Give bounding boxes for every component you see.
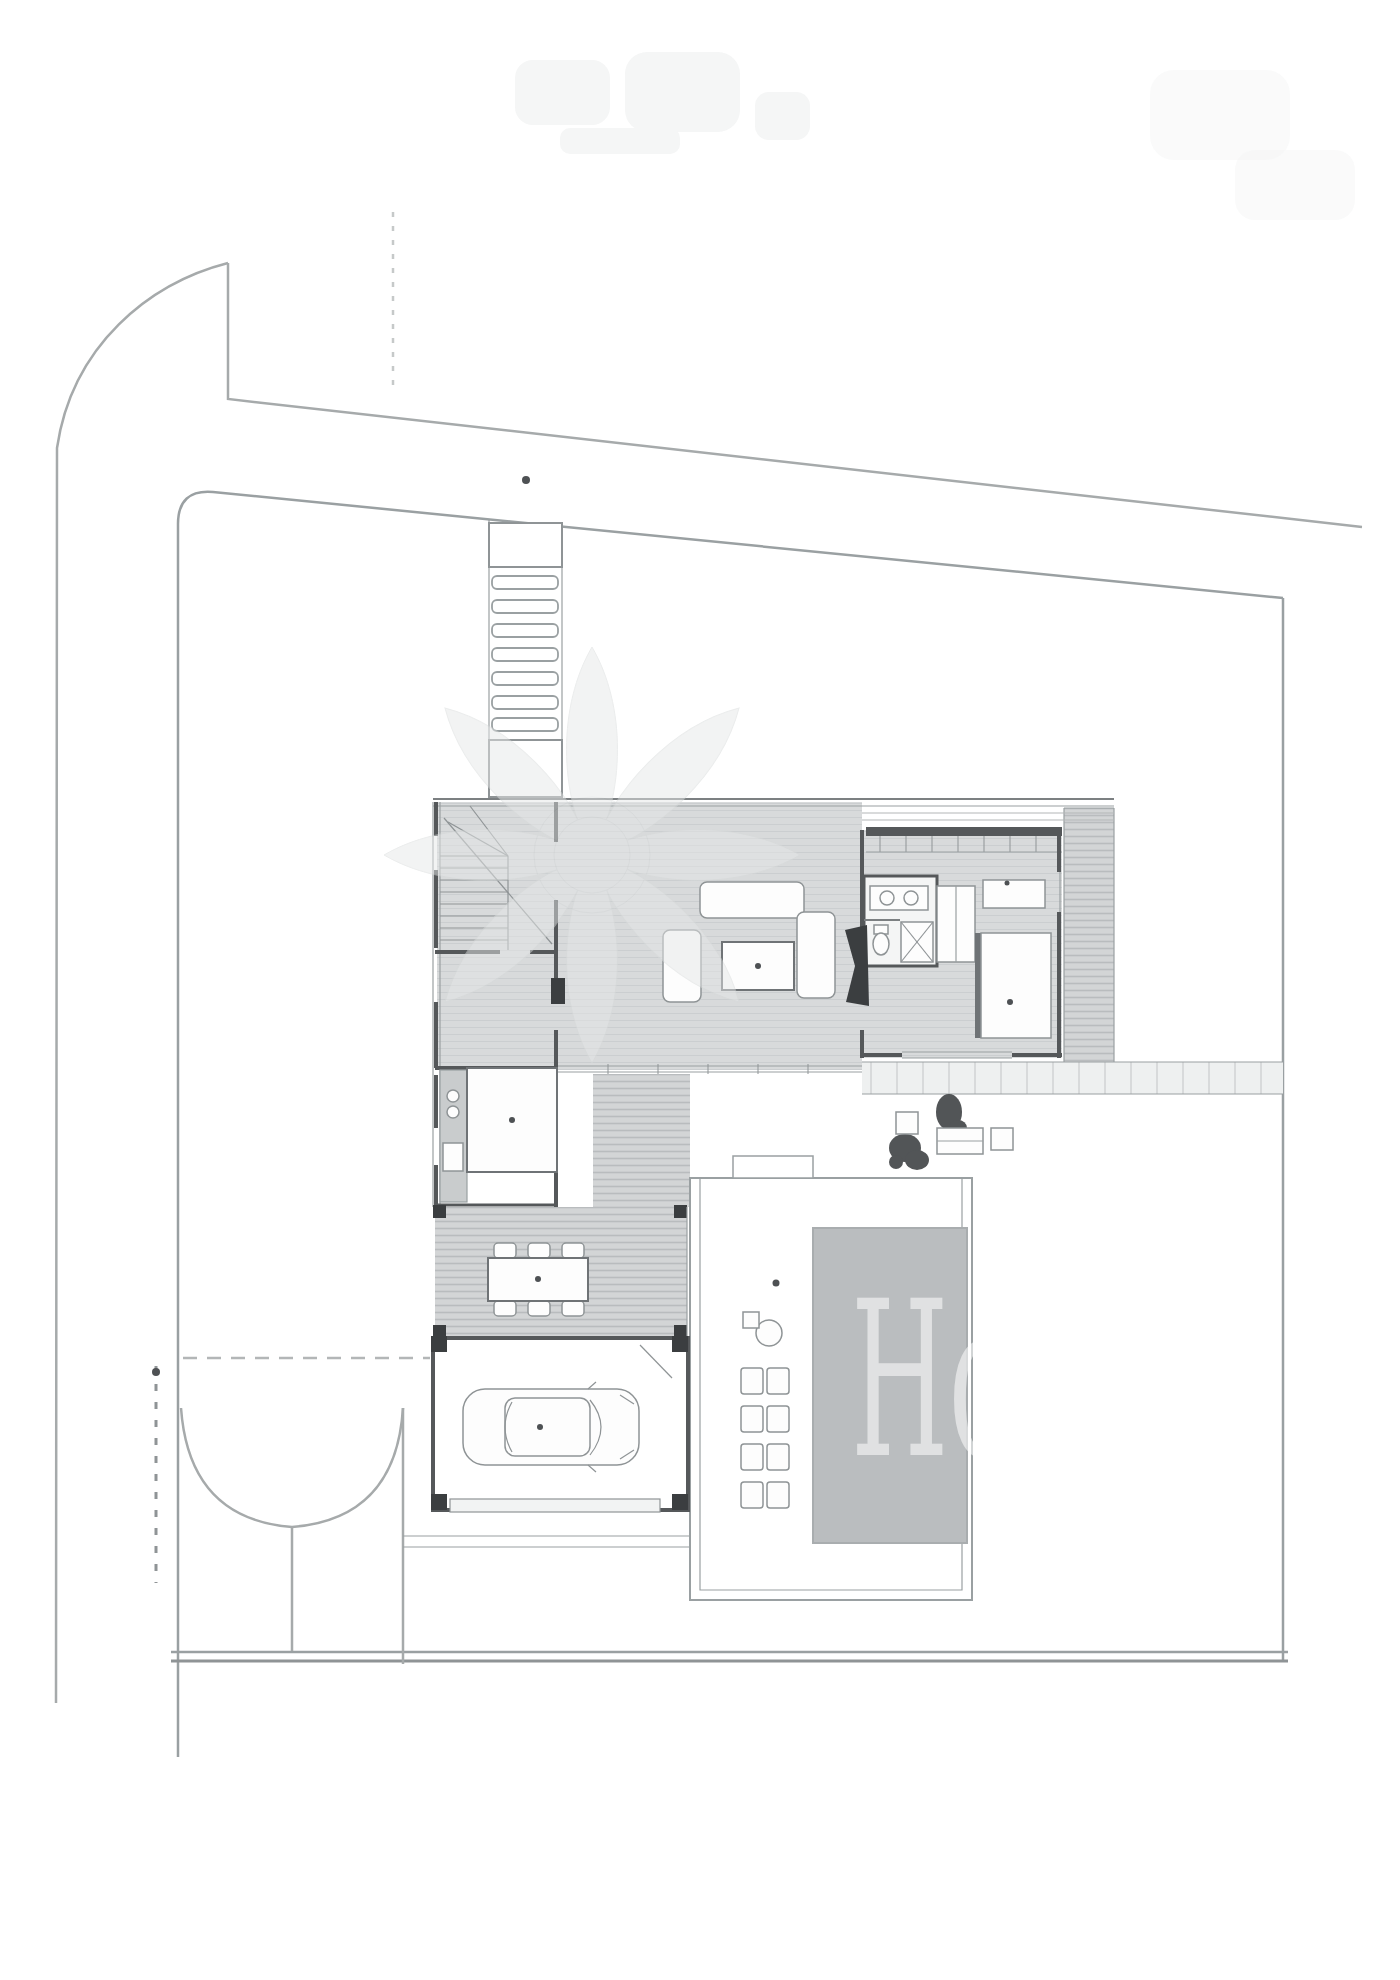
lounge-table <box>756 1320 782 1346</box>
survey-dot <box>522 476 530 484</box>
dresser <box>983 880 1045 908</box>
side-deck <box>593 1074 690 1207</box>
planters <box>889 1094 1013 1170</box>
bedroom-north-wall <box>866 827 1062 836</box>
stepping-stones <box>492 576 558 731</box>
watermark-blur-top <box>515 52 1355 220</box>
east-deck <box>1064 808 1114 1062</box>
watermark-text: Ho <box>851 1256 1016 1506</box>
floor-plan-svg: Ho <box>0 0 1400 1980</box>
garage <box>431 1336 688 1512</box>
boardwalk <box>862 1062 1283 1094</box>
bed-headboard <box>975 933 981 1038</box>
bathroom <box>864 876 937 966</box>
entry-landing <box>489 523 562 567</box>
sofa <box>700 882 804 918</box>
garage-door <box>450 1499 660 1512</box>
bed <box>981 933 1051 1038</box>
bedroom <box>975 880 1051 1038</box>
site-plan-drawing: Ho <box>0 0 1400 1980</box>
kitchen <box>440 1068 557 1202</box>
watermark-flower <box>384 647 800 1063</box>
car <box>463 1382 639 1472</box>
